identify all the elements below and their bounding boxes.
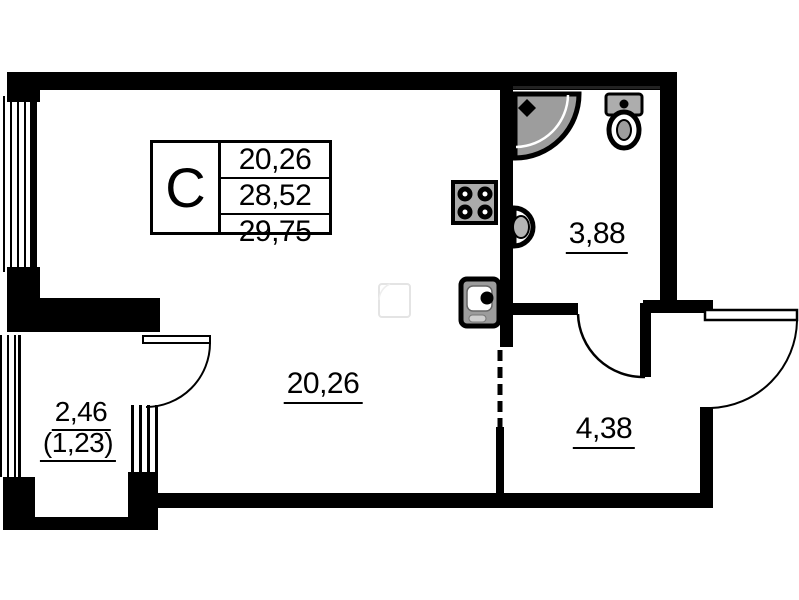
stove-icon xyxy=(453,182,496,223)
wall-partition-stub xyxy=(496,427,504,493)
window-icon-balcony-left xyxy=(0,335,21,477)
wall-entry-bottom-stub xyxy=(700,407,713,508)
window-icon-balcony-partition xyxy=(131,405,158,472)
wall-bathroom-bottom xyxy=(500,303,578,315)
door-leaf-balcony xyxy=(143,336,210,343)
wall-entry-top-stub xyxy=(643,300,713,313)
legend-table: C 20,26 28,52 29,75 xyxy=(150,140,332,235)
legend-value-row: 29,75 xyxy=(221,215,329,249)
window-icon-living-left xyxy=(3,96,37,272)
door-swing-arc-balcony xyxy=(146,343,210,407)
room-label-balcony-reduced: (1,23) xyxy=(40,429,116,462)
legend-value-row: 28,52 xyxy=(221,179,329,215)
wall-balcony-right-pillar xyxy=(128,472,158,530)
wall-top-left-block xyxy=(7,72,40,102)
room-label-bathroom: 3,88 xyxy=(566,219,628,254)
wall-balcony-top xyxy=(10,298,160,332)
wall-balcony-left-pillar xyxy=(3,477,35,528)
door-entrance xyxy=(705,310,797,408)
shower-icon xyxy=(515,94,579,158)
sink-icon xyxy=(513,208,533,246)
wall-bathroom-inner-line xyxy=(513,86,660,89)
legend-value-row: 20,26 xyxy=(221,143,329,179)
wall-bathroom-right xyxy=(660,72,677,303)
floor-plan: C 20,26 28,52 29,75 20,26 3,88 4,38 2,46… xyxy=(0,0,799,600)
door-bathroom xyxy=(578,303,651,377)
door-swing-arc-entrance xyxy=(711,321,797,408)
door-leaf-bathroom xyxy=(640,303,651,377)
legend-values: 20,26 28,52 29,75 xyxy=(221,143,329,232)
door-swing-arc-bathroom xyxy=(578,314,645,377)
floor-plan-drawing xyxy=(0,0,799,600)
toilet-icon xyxy=(606,94,642,148)
door-balcony xyxy=(143,336,210,407)
legend-type-cell: C xyxy=(153,143,221,232)
faint-watermark xyxy=(379,284,410,317)
room-label-living: 20,26 xyxy=(284,369,363,404)
wall-bottom xyxy=(158,493,713,508)
room-label-hall: 4,38 xyxy=(573,414,635,449)
kitchen-sink-icon xyxy=(461,279,499,326)
door-leaf-entrance xyxy=(705,310,797,320)
